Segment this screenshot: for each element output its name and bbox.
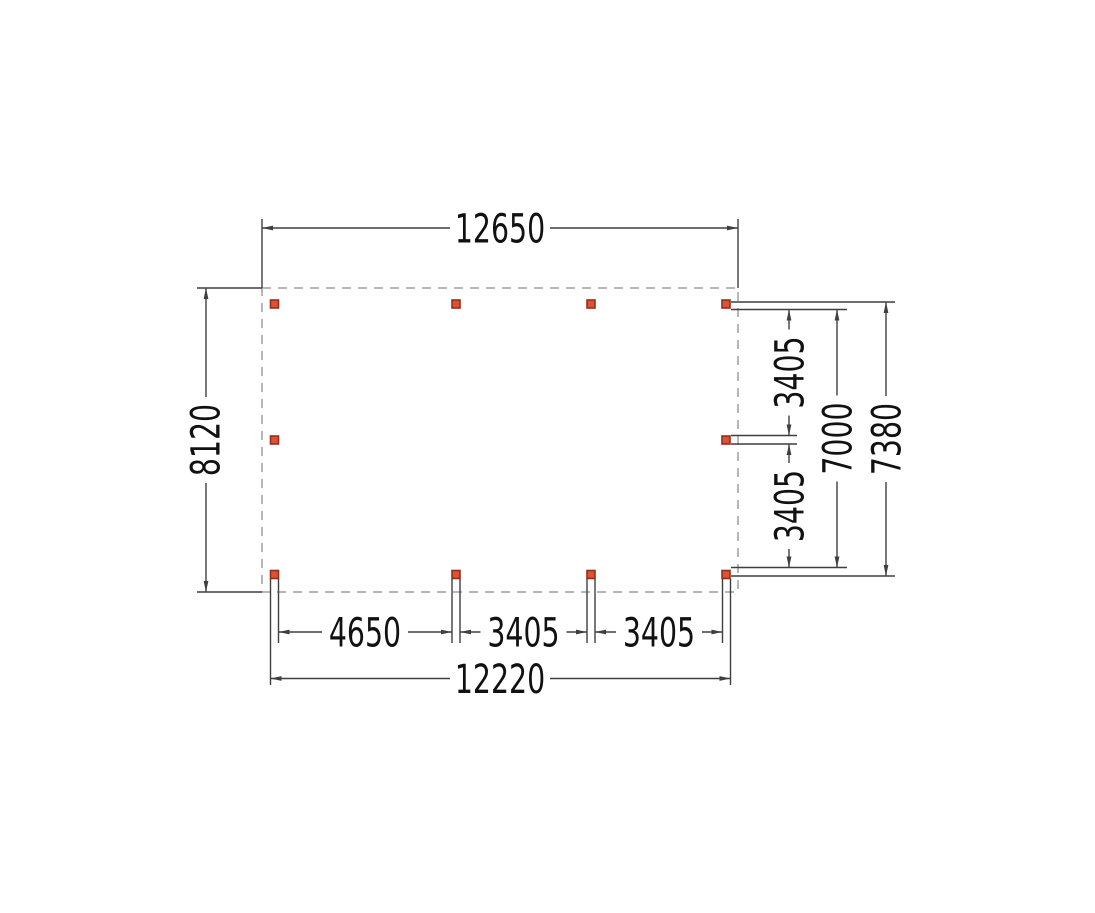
dim-right-span-inner: 7000 bbox=[816, 310, 862, 568]
post-bottom-1 bbox=[271, 571, 279, 579]
arrow-down-icon bbox=[884, 565, 889, 576]
arrow-up-icon bbox=[787, 444, 792, 455]
dim-top-width: 12650 bbox=[262, 207, 738, 253]
dim-label-group: 7000 bbox=[816, 396, 862, 482]
arrow-up-icon bbox=[787, 310, 792, 321]
dim-label-left-height: 8120 bbox=[184, 404, 230, 476]
arrow-up-icon bbox=[204, 288, 209, 299]
dim-left-height: 8120 bbox=[184, 288, 230, 592]
post-bottom-4 bbox=[722, 571, 730, 579]
post-top-2 bbox=[452, 300, 460, 308]
dim-right-bay-lower: 3405 bbox=[768, 444, 814, 568]
dim-label-group: 3405 bbox=[768, 463, 814, 549]
post-bottom-3 bbox=[587, 571, 595, 579]
dim-label-bottom-total: 12220 bbox=[455, 657, 545, 703]
dim-label-group: 8120 bbox=[184, 397, 230, 483]
arrow-down-icon bbox=[787, 557, 792, 568]
arrow-up-icon bbox=[884, 302, 889, 313]
arrow-right-icon bbox=[720, 676, 731, 681]
arrow-down-icon bbox=[835, 557, 840, 568]
dim-label-group: 3405 bbox=[768, 330, 814, 416]
dim-right-bay-upper: 3405 bbox=[768, 310, 814, 436]
dim-bottom-total: 12220 bbox=[271, 657, 731, 703]
arrow-up-icon bbox=[835, 310, 840, 321]
floor-plan-drawing: 12650 8120 3405 3405 bbox=[0, 0, 1095, 913]
dim-bottom-bay-1: 4650 bbox=[279, 611, 453, 657]
arrow-left-icon bbox=[460, 630, 471, 635]
arrow-right-icon bbox=[727, 226, 738, 231]
post-top-1 bbox=[271, 300, 279, 308]
dim-label-bottom-bay-2: 3405 bbox=[487, 611, 559, 657]
dim-label-bottom-bay-3: 3405 bbox=[623, 611, 695, 657]
roof-outline bbox=[262, 288, 738, 592]
arrow-down-icon bbox=[787, 425, 792, 436]
dim-label-group: 12650 bbox=[450, 207, 550, 253]
dim-label-group: 3405 bbox=[616, 611, 702, 657]
dim-label-right-bay-upper: 3405 bbox=[768, 336, 814, 408]
dim-label-group: 7380 bbox=[865, 396, 911, 482]
floor-plan-canvas: 12650 8120 3405 3405 bbox=[0, 0, 1095, 913]
arrow-right-icon bbox=[712, 630, 723, 635]
dim-label-bottom-bay-1: 4650 bbox=[329, 611, 401, 657]
posts bbox=[271, 300, 731, 579]
arrow-down-icon bbox=[204, 581, 209, 592]
dim-bottom-bay-3: 3405 bbox=[595, 611, 723, 657]
arrow-left-icon bbox=[595, 630, 606, 635]
dim-label-group: 3405 bbox=[481, 611, 567, 657]
post-bottom-2 bbox=[452, 571, 460, 579]
dim-bottom-bay-2: 3405 bbox=[460, 611, 587, 657]
dim-label-right-span-inner: 7000 bbox=[816, 402, 862, 474]
dim-label-right-bay-lower: 3405 bbox=[768, 470, 814, 542]
dim-label-group: 12220 bbox=[450, 657, 550, 703]
dim-label-top-width: 12650 bbox=[455, 207, 545, 253]
dim-label-group: 4650 bbox=[322, 611, 408, 657]
post-top-4 bbox=[722, 300, 730, 308]
arrow-left-icon bbox=[271, 676, 282, 681]
roof-outline-rect bbox=[262, 288, 738, 592]
post-top-3 bbox=[587, 300, 595, 308]
post-middle-right bbox=[722, 436, 730, 444]
arrow-left-icon bbox=[262, 226, 273, 231]
arrow-right-icon bbox=[441, 630, 452, 635]
arrow-right-icon bbox=[576, 630, 587, 635]
dim-label-right-span-outer: 7380 bbox=[865, 403, 911, 475]
post-middle-left bbox=[271, 436, 279, 444]
dim-right-span-outer: 7380 bbox=[865, 302, 911, 576]
arrow-left-icon bbox=[279, 630, 290, 635]
